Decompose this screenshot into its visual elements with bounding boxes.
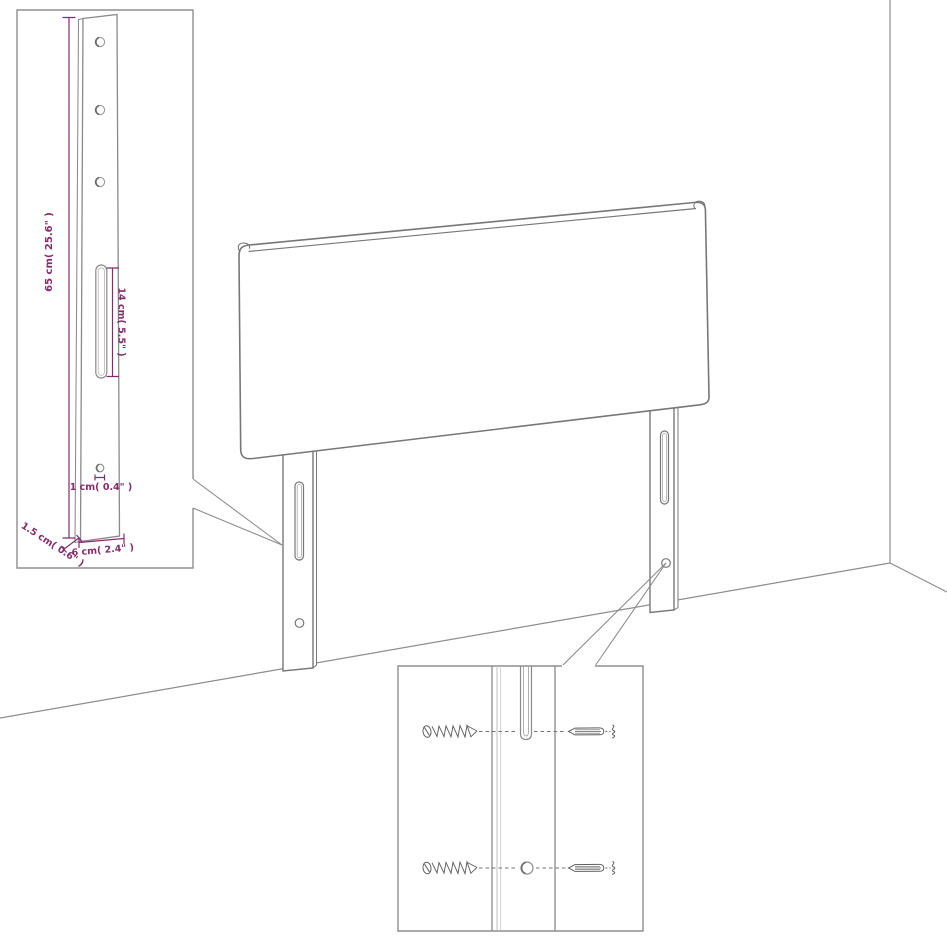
panel-outline xyxy=(239,202,709,458)
right-leg-slot xyxy=(661,431,669,504)
headboard-diagram: 65 cm( 25.6" ) 14 cm( 5.5" ) 1 cm( 0.4" … xyxy=(0,0,947,947)
leg-detail-leader-upper xyxy=(193,479,282,545)
label-slot-14cm: 14 cm( 5.5" ) xyxy=(116,287,127,356)
bracket-slot xyxy=(96,265,107,378)
leg-detail-leader-lower xyxy=(193,508,282,545)
hardware-detail-inset xyxy=(398,665,643,931)
left-leg-slot xyxy=(295,482,304,560)
diagram-canvas: 65 cm( 25.6" ) 14 cm( 5.5" ) 1 cm( 0.4" … xyxy=(0,0,947,947)
hardware-detail-leader-right xyxy=(595,563,666,666)
left-leg-hole xyxy=(295,619,304,628)
left-mounting-leg xyxy=(283,447,317,672)
detail-leader-lines xyxy=(193,479,666,666)
label-height-65cm: 65 cm( 25.6" ) xyxy=(44,212,55,292)
headboard-panel xyxy=(238,201,709,459)
leg-detail-inset: 65 cm( 25.6" ) 14 cm( 5.5" ) 1 cm( 0.4" … xyxy=(17,10,193,569)
right-mounting-leg xyxy=(650,403,678,613)
floor-line-right xyxy=(890,563,947,592)
hardware-detail-leader-left xyxy=(562,563,666,666)
label-hole-1cm: 1 cm( 0.4" ) xyxy=(70,482,133,493)
